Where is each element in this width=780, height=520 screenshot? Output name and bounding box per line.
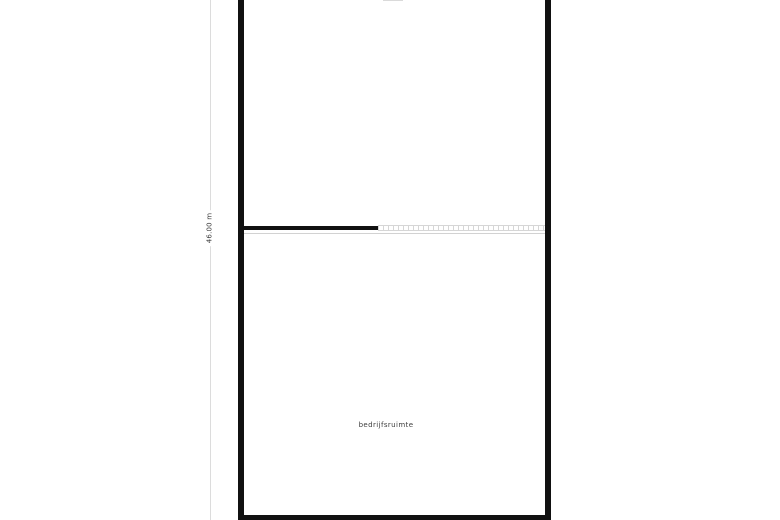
wall-right	[545, 0, 551, 520]
dimension-label: 46.00 m	[205, 210, 216, 246]
wall-bottom	[238, 515, 551, 520]
partition-wall-solid	[244, 226, 378, 230]
room-label: bedrijfsruimte	[359, 421, 414, 429]
wall-face-line	[244, 233, 545, 234]
dimension-line	[210, 0, 211, 520]
top-edge-clipped-line	[383, 0, 403, 1]
wall-left	[238, 0, 244, 520]
floor-plan: 46.00 m bedrijfsruimte	[0, 0, 780, 520]
partition-wall-dashed	[378, 225, 545, 231]
